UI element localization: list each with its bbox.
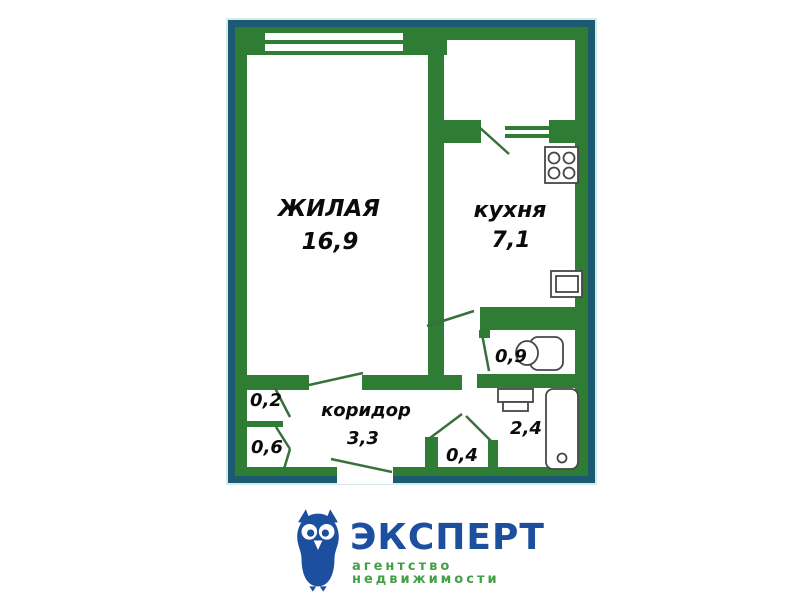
vestibule-area: 0,4	[446, 447, 478, 465]
wall-right	[575, 27, 588, 476]
wall-living-bottom-right	[362, 375, 462, 390]
wall-kitchen-top-left	[444, 120, 481, 143]
living-room-label: ЖИЛАЯ	[278, 198, 380, 221]
logo-brand-text: ЭКСПЕРТ	[350, 520, 545, 556]
wall-left	[235, 27, 247, 476]
corridor-area: 3,3	[347, 430, 379, 448]
wall-kitchen-bottom	[480, 307, 588, 330]
corridor-label: коридор	[321, 402, 411, 420]
closet-upper-area: 0,2	[250, 392, 282, 410]
living-room-area: 16,9	[302, 231, 359, 254]
wall-middle-vertical	[428, 27, 444, 375]
wall-bottom-right	[393, 467, 588, 476]
wall-wc-door-jamb	[479, 330, 490, 338]
plan-outer-frame	[228, 20, 595, 483]
wall-vestibule-left	[425, 437, 438, 471]
bathroom-area: 2,4	[510, 420, 542, 438]
wall-kitchen-top-right	[549, 120, 575, 143]
owl-icon	[292, 508, 344, 592]
wall-top-right-section	[447, 27, 588, 40]
wall-bottom-left	[235, 467, 337, 476]
living-window-icon	[265, 33, 403, 40]
logo-tagline-text: агентство недвижимости	[352, 560, 552, 586]
entrance-opening	[337, 467, 393, 484]
wall-living-bottom-left	[247, 375, 309, 390]
wc-area: 0,9	[495, 348, 527, 366]
wall-wc-bottom	[477, 374, 588, 388]
floorplan-page: ЖИЛАЯ 16,9 кухня 7,1 коридор 3,3 0,2 0,6…	[0, 0, 800, 600]
kitchen-window-icon	[505, 126, 549, 130]
living-window-icon	[265, 44, 403, 51]
kitchen-window-icon	[505, 120, 549, 143]
kitchen-label: кухня	[474, 200, 547, 222]
kitchen-window-icon	[505, 134, 549, 138]
kitchen-area: 7,1	[492, 230, 531, 252]
closet-lower-area: 0,6	[251, 439, 283, 457]
wall-closet-divider	[247, 421, 283, 427]
agency-logo: ЭКСПЕРТ агентство недвижимости	[292, 504, 552, 596]
